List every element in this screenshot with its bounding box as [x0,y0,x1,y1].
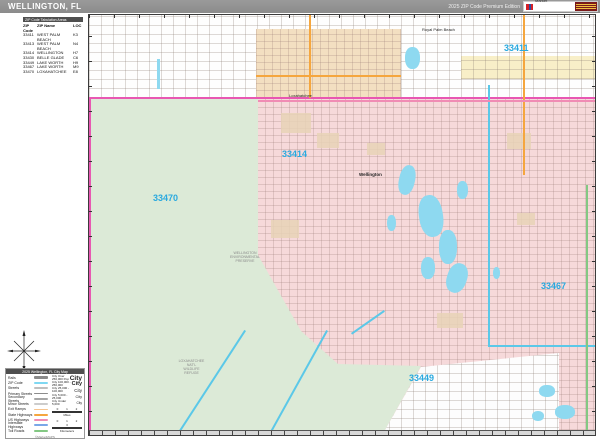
map-title: WELLINGTON, FL [8,2,81,11]
park-patch [271,220,299,238]
scale-bar-km: 0 1 2 3 Kilometers [52,419,82,433]
lake [555,405,575,419]
zip-boundary-cyan-horizontal [488,345,596,347]
place-label-loxahatchee: Loxahatchee [289,93,312,98]
marketmaps-logo: Market MAPS [523,1,598,12]
lake [532,411,544,421]
compass-rose-icon [5,330,43,372]
zip-label-33414: 33414 [282,149,307,159]
frame-ticks-right [592,15,595,436]
park-patch [517,213,535,225]
lake [387,215,396,231]
park-patch [317,133,339,148]
zip-boundary-magenta-horizontal [89,97,596,99]
state-highway-road [256,75,401,77]
logo-brand-top: Market [535,0,547,3]
legend-sample-zip [34,382,48,384]
logo-sub-box [575,2,597,11]
lake [405,47,420,69]
legend-sample-ramps [34,409,48,411]
lake [457,181,468,199]
legend-sample-state-hwy [34,414,48,416]
legend-road-column: Rails ZIP Code Streets Primary Streets S… [8,375,52,433]
legend-sample-minor [34,403,48,405]
toll-road [586,185,588,436]
zip-label-33449: 33449 [409,373,434,383]
park-patch [437,313,463,328]
lake [421,257,435,279]
col-zip-code: ZIP Code [23,23,37,33]
state-highway-road [523,15,525,175]
park-patch [507,133,531,149]
area-label-preserve: WELLINGTON ENVIRONMENTAL PRESERVE [224,251,266,263]
lake [493,267,500,279]
zip-label-33411: 33411 [504,43,529,53]
legend-sample-toll [34,430,48,432]
legend-city-column: City Over 250,000 PopCity City 100,000 -… [52,375,82,433]
legend-sample-streets [34,387,48,389]
legend-sample-primary [34,393,48,395]
lake [439,230,457,264]
area-label-refuge: LOXAHATCHEE NAT'L WILDLIFE REFUGE [169,359,214,375]
canal-segment [157,59,160,89]
legend-sample-rails [34,376,48,378]
col-loc: LOC [73,23,82,33]
us-highway-road [258,100,596,102]
state-highway-road [309,15,311,98]
frame-ticks-top [89,15,596,18]
zip-label-33470: 33470 [153,193,178,203]
legend-sample-interstate [34,424,48,426]
park-patch [367,143,385,155]
legend-sample-secondary [34,398,48,400]
edition-label: 2025 ZIP Code Premium Edition [448,4,520,10]
region-tan-north [256,29,401,98]
zip-label-33467: 33467 [541,281,566,291]
table-row: 33470LOXAHATCHEEE8 [23,70,83,75]
map-legend: 2025 Wellington, FL City Map Rails ZIP C… [5,368,85,439]
legend-footer: ©MarketMAPS [6,435,84,439]
map-canvas: 33411 33414 33470 33467 33449 Royal Palm… [88,14,596,436]
lake [539,385,555,397]
place-label-royal-palm-beach: Royal Palm Beach [422,27,455,32]
zip-code-table: ZIP Code Tabulation Areas ZIP Code ZIP N… [23,17,83,74]
legend-sample-us-hwy [34,419,48,421]
title-bar: WELLINGTON, FL 2025 ZIP Code Premium Edi… [0,0,600,13]
place-label-wellington: Wellington [359,172,382,177]
zip-boundary-cyan-vertical [488,85,490,347]
col-zip-name: ZIP Name [37,23,73,33]
park-patch [281,113,311,133]
scale-bar-miles: 0 1 2 Miles [52,407,82,417]
frame-ticks-left [89,15,92,436]
region-yellow-strip [461,56,596,79]
frame-ruler-bottom [89,430,596,435]
logo-flag-icon [526,4,533,10]
